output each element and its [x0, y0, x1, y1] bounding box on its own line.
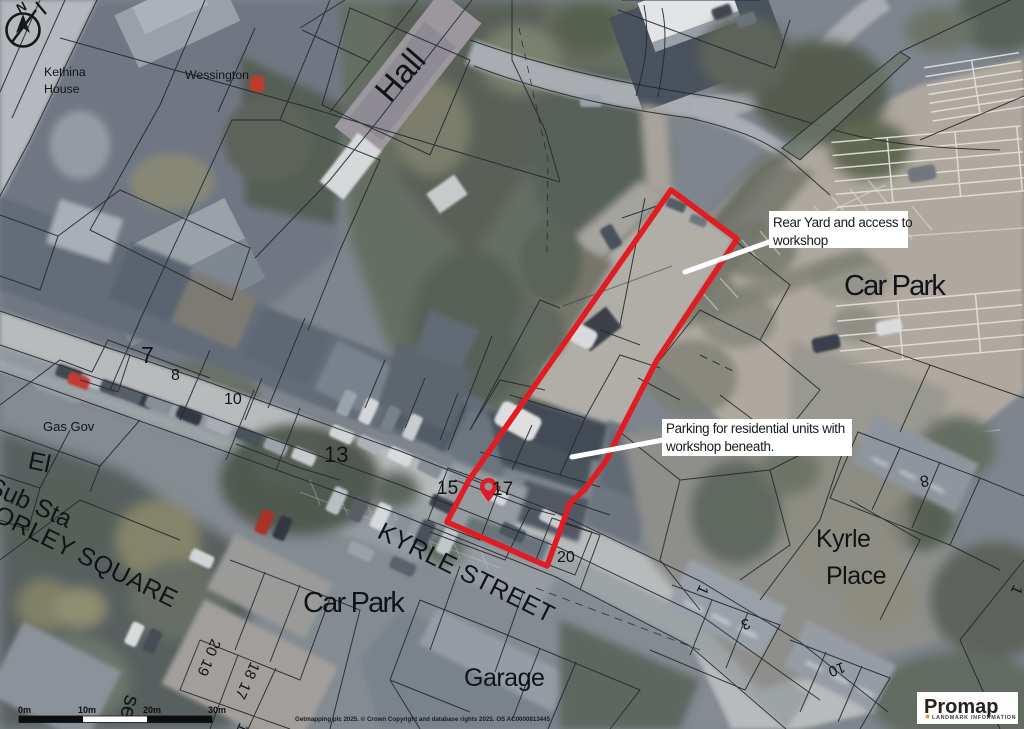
svg-text:House: House	[44, 82, 80, 96]
svg-text:workshop: workshop	[772, 233, 828, 248]
svg-text:20: 20	[557, 549, 575, 566]
svg-text:30m: 30m	[208, 705, 226, 715]
svg-text:0m: 0m	[18, 705, 31, 715]
svg-text:10: 10	[224, 391, 242, 408]
svg-text:8: 8	[171, 367, 180, 384]
svg-text:Kyrle: Kyrle	[816, 525, 870, 553]
svg-text:10m: 10m	[78, 705, 96, 715]
svg-text:Place: Place	[826, 562, 886, 590]
svg-text:Car Park: Car Park	[303, 587, 405, 619]
svg-text:Getmapping plc 2025. © Crown C: Getmapping plc 2025. © Crown Copyright a…	[295, 716, 551, 723]
svg-text:17: 17	[492, 479, 513, 500]
svg-text:Gas Gov: Gas Gov	[43, 419, 95, 434]
svg-text:15: 15	[437, 478, 458, 499]
svg-text:Kethina: Kethina	[44, 65, 86, 79]
svg-text:Garage: Garage	[464, 664, 544, 692]
svg-text:workshop beneath.: workshop beneath.	[665, 439, 774, 454]
svg-text:20m: 20m	[143, 705, 161, 715]
svg-text:Wessington: Wessington	[185, 68, 249, 82]
svg-text:Parking for residential units: Parking for residential units with	[666, 421, 845, 436]
svg-text:13: 13	[324, 442, 348, 467]
svg-text:Car Park: Car Park	[844, 270, 946, 302]
svg-text:LANDMARK INFORMATION: LANDMARK INFORMATION	[932, 715, 1016, 721]
svg-text:7: 7	[141, 342, 154, 368]
svg-text:Rear Yard and access to: Rear Yard and access to	[773, 215, 912, 230]
